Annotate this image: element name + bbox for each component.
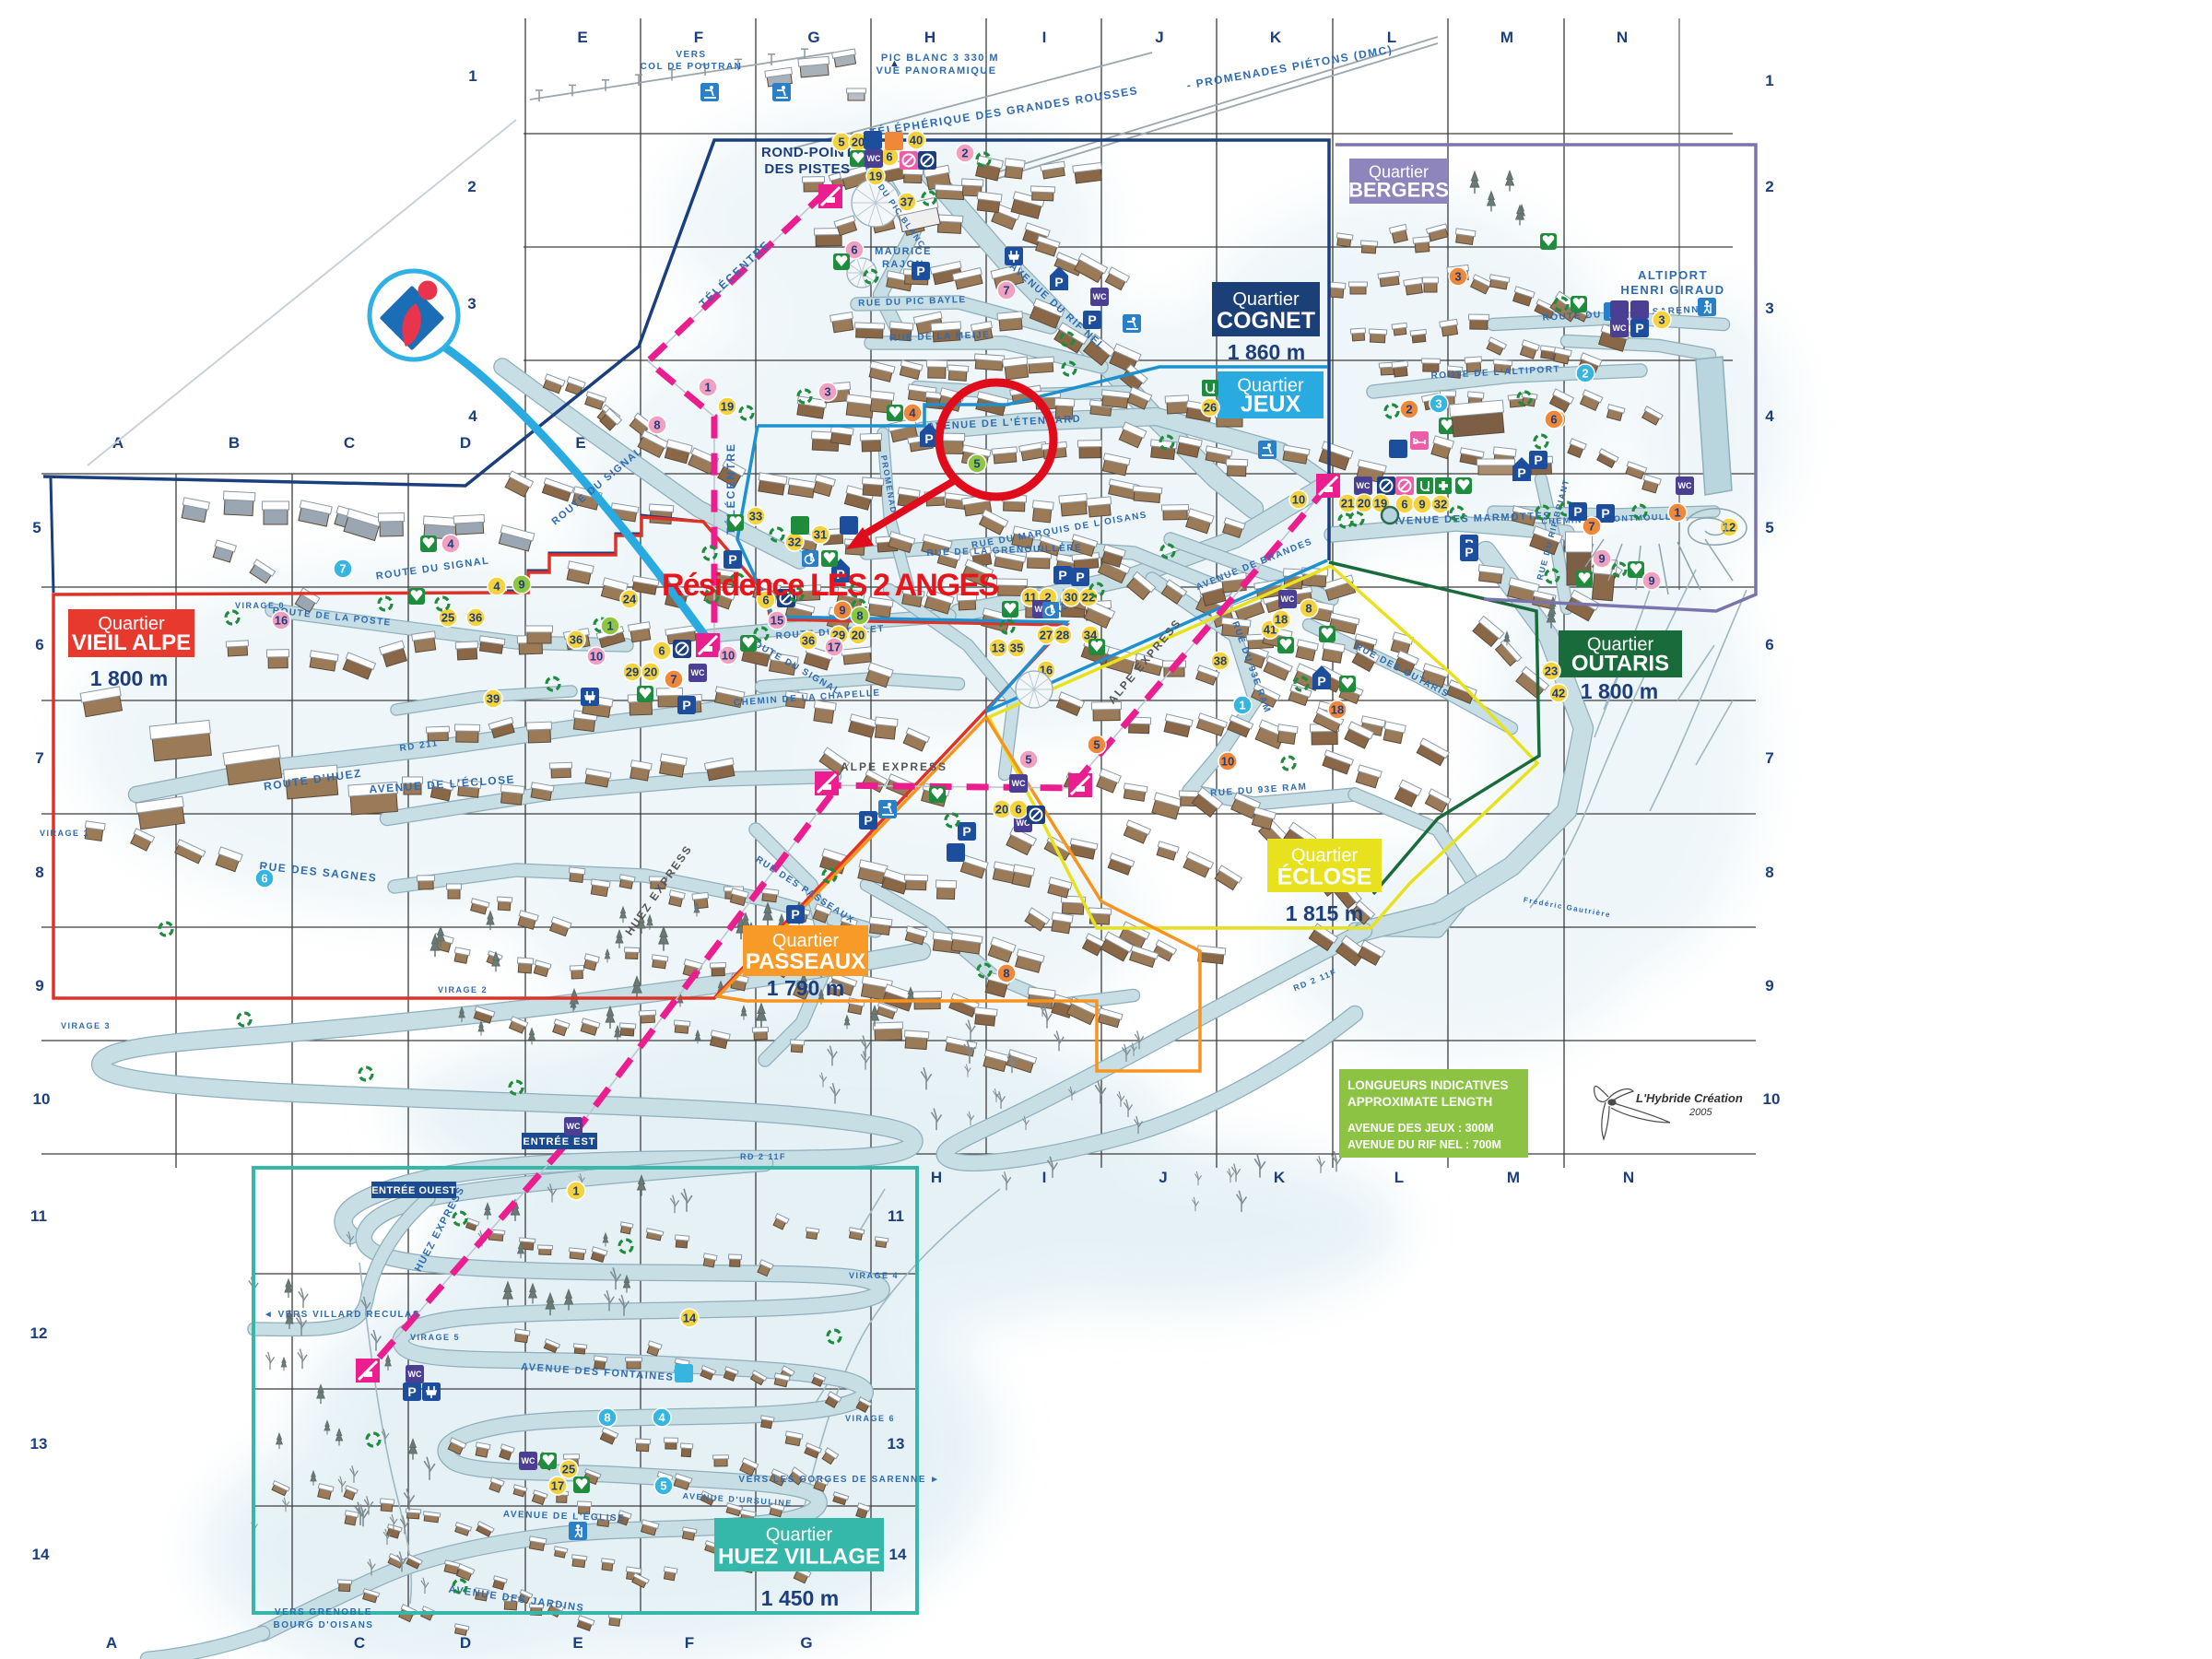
svg-text:WC: WC xyxy=(867,154,881,163)
svg-text:3: 3 xyxy=(1454,270,1461,284)
svg-text:P: P xyxy=(962,824,971,839)
svg-text:M: M xyxy=(1500,29,1513,46)
svg-text:ALTIPORT: ALTIPORT xyxy=(1638,268,1708,282)
svg-text:20: 20 xyxy=(1358,497,1371,511)
svg-text:HENRI GIRAUD: HENRI GIRAUD xyxy=(1620,283,1724,297)
svg-text:N: N xyxy=(1623,1169,1634,1186)
svg-text:10: 10 xyxy=(1763,1090,1781,1108)
svg-text:DES PISTES: DES PISTES xyxy=(764,161,850,177)
svg-text:2: 2 xyxy=(1582,367,1588,381)
svg-text:36: 36 xyxy=(802,634,815,648)
svg-text:B: B xyxy=(229,434,240,452)
svg-text:VIRAGE 5: VIRAGE 5 xyxy=(410,1333,460,1342)
svg-text:14: 14 xyxy=(889,1546,907,1563)
svg-text:10: 10 xyxy=(722,649,735,663)
svg-text:E: E xyxy=(572,1634,582,1652)
svg-text:6: 6 xyxy=(1401,498,1407,512)
svg-text:8: 8 xyxy=(35,864,43,881)
svg-text:VIRAGE 2: VIRAGE 2 xyxy=(438,985,488,994)
svg-text:WC: WC xyxy=(567,1122,581,1131)
svg-text:I: I xyxy=(1042,1169,1047,1186)
svg-text:1 450 m: 1 450 m xyxy=(761,1586,839,1610)
svg-text:13: 13 xyxy=(992,641,1005,655)
svg-text:8: 8 xyxy=(604,1411,610,1425)
svg-text:AVENUE DU RIF NEL : 700M: AVENUE DU RIF NEL : 700M xyxy=(1347,1138,1501,1151)
svg-text:Quartier: Quartier xyxy=(766,1524,833,1545)
svg-text:13: 13 xyxy=(888,1435,905,1453)
svg-text:1 790 m: 1 790 m xyxy=(767,976,844,1000)
svg-text:P: P xyxy=(916,264,924,278)
svg-text:4: 4 xyxy=(658,1411,665,1425)
svg-text:10: 10 xyxy=(1292,493,1305,507)
svg-text:JEUX: JEUX xyxy=(1241,391,1301,417)
svg-text:6: 6 xyxy=(851,243,857,257)
svg-text:20: 20 xyxy=(644,665,657,679)
svg-text:J: J xyxy=(1159,1169,1167,1186)
svg-text:15: 15 xyxy=(771,614,783,628)
svg-text:G: G xyxy=(807,29,819,46)
svg-text:P: P xyxy=(1058,568,1066,582)
svg-text:20: 20 xyxy=(852,629,865,642)
svg-text:WC: WC xyxy=(522,1456,535,1465)
svg-text:D: D xyxy=(460,434,471,452)
svg-text:31: 31 xyxy=(814,528,827,542)
svg-text:17: 17 xyxy=(551,1479,564,1493)
svg-text:9: 9 xyxy=(35,977,43,994)
svg-text:LONGUEURS INDICATIVES: LONGUEURS INDICATIVES xyxy=(1347,1078,1509,1092)
svg-text:P: P xyxy=(1076,570,1084,584)
svg-text:3: 3 xyxy=(467,295,476,312)
svg-text:18: 18 xyxy=(1275,613,1288,627)
svg-text:1 800 m: 1 800 m xyxy=(90,666,168,690)
svg-text:MAURICE: MAURICE xyxy=(875,246,932,257)
svg-text:25: 25 xyxy=(441,611,454,625)
svg-text:VIEIL ALPE: VIEIL ALPE xyxy=(72,630,191,655)
svg-text:COL DE POUTRAN: COL DE POUTRAN xyxy=(641,62,743,72)
svg-text:4: 4 xyxy=(493,580,500,594)
svg-text:5: 5 xyxy=(660,1479,666,1493)
svg-text:1: 1 xyxy=(1765,72,1773,89)
svg-text:P: P xyxy=(728,552,736,567)
svg-text:5: 5 xyxy=(1765,519,1773,536)
svg-text:2: 2 xyxy=(961,147,968,160)
svg-text:11: 11 xyxy=(30,1207,47,1225)
svg-text:1 815 m: 1 815 m xyxy=(1286,901,1363,925)
svg-text:36: 36 xyxy=(570,633,582,647)
svg-text:35: 35 xyxy=(1010,641,1023,655)
svg-text:J: J xyxy=(1155,29,1163,46)
svg-text:G: G xyxy=(800,1634,812,1652)
svg-text:6: 6 xyxy=(35,636,43,653)
svg-text:P: P xyxy=(407,1384,416,1399)
svg-text:3: 3 xyxy=(1435,397,1441,411)
svg-text:9: 9 xyxy=(518,578,524,592)
svg-text:N: N xyxy=(1617,29,1628,46)
svg-text:2: 2 xyxy=(467,178,476,195)
svg-text:13: 13 xyxy=(30,1435,48,1453)
svg-text:9: 9 xyxy=(1765,977,1773,994)
svg-text:COGNET: COGNET xyxy=(1217,308,1315,334)
svg-text:8: 8 xyxy=(1305,602,1312,616)
svg-text:E: E xyxy=(577,29,587,46)
svg-text:9: 9 xyxy=(1418,498,1425,512)
svg-text:I: I xyxy=(1042,29,1047,46)
svg-text:P: P xyxy=(791,907,799,922)
svg-text:9: 9 xyxy=(1598,552,1605,566)
svg-text:ÉCLOSE: ÉCLOSE xyxy=(1277,863,1372,889)
svg-text:P: P xyxy=(1088,312,1096,327)
svg-text:L'Hybride Création: L'Hybride Création xyxy=(1636,1091,1743,1105)
svg-text:16: 16 xyxy=(275,614,288,628)
svg-text:PASSEAUX: PASSEAUX xyxy=(746,949,865,974)
svg-text:PIC BLANC 3 330 M: PIC BLANC 3 330 M xyxy=(881,53,999,64)
svg-text:9: 9 xyxy=(1648,574,1654,588)
svg-text:30: 30 xyxy=(1065,591,1077,605)
svg-text:VIRAGE 3: VIRAGE 3 xyxy=(61,1021,111,1030)
svg-text:10: 10 xyxy=(33,1090,51,1108)
svg-text:Quartier: Quartier xyxy=(1232,289,1300,310)
svg-text:M: M xyxy=(1507,1169,1520,1186)
svg-text:VERS LES GORGES DE SARENNE ►: VERS LES GORGES DE SARENNE ► xyxy=(738,1475,940,1485)
svg-text:ALPE EXPRESS: ALPE EXPRESS xyxy=(841,760,947,773)
svg-text:6: 6 xyxy=(1550,413,1557,427)
svg-text:RD 2 11F: RD 2 11F xyxy=(740,1152,786,1161)
svg-text:Résidence LES 2 ANGES: Résidence LES 2 ANGES xyxy=(662,568,999,603)
svg-text:1 800 m: 1 800 m xyxy=(1581,679,1658,703)
svg-text:VIRAGE 1: VIRAGE 1 xyxy=(40,829,89,838)
svg-text:1 860 m: 1 860 m xyxy=(1228,340,1305,364)
svg-text:36: 36 xyxy=(469,611,482,625)
svg-text:WC: WC xyxy=(408,1370,422,1379)
svg-text:14: 14 xyxy=(683,1312,697,1325)
svg-text:VIRAGE 0: VIRAGE 0 xyxy=(235,601,285,610)
svg-text:6: 6 xyxy=(1015,803,1021,817)
svg-text:6: 6 xyxy=(261,872,267,886)
svg-text:VIRAGE 6: VIRAGE 6 xyxy=(845,1414,895,1423)
svg-text:1: 1 xyxy=(704,381,711,394)
svg-text:◄ VERS VILLARD RECULAS: ◄ VERS VILLARD RECULAS xyxy=(264,1310,420,1320)
svg-text:20: 20 xyxy=(995,803,1008,817)
svg-text:5: 5 xyxy=(1093,738,1100,752)
svg-text:4: 4 xyxy=(468,407,477,425)
svg-text:7: 7 xyxy=(670,673,677,687)
svg-text:VUE PANORAMIQUE: VUE PANORAMIQUE xyxy=(876,65,996,76)
svg-text:24: 24 xyxy=(623,593,637,606)
svg-text:C: C xyxy=(344,434,355,452)
svg-text:5: 5 xyxy=(1025,753,1031,767)
svg-text:ENTRÉE OUEST: ENTRÉE OUEST xyxy=(371,1184,456,1196)
svg-text:8: 8 xyxy=(1765,864,1773,881)
svg-text:7: 7 xyxy=(1588,520,1594,534)
svg-text:19: 19 xyxy=(869,170,882,183)
svg-text:VERS GRENOBLE: VERS GRENOBLE xyxy=(275,1607,372,1618)
svg-text:VERS: VERS xyxy=(676,50,706,60)
svg-text:P: P xyxy=(1465,545,1473,559)
svg-text:D: D xyxy=(460,1634,471,1652)
svg-text:40: 40 xyxy=(910,134,923,147)
svg-text:H: H xyxy=(931,1169,942,1186)
svg-text:21: 21 xyxy=(1341,497,1354,511)
svg-text:1: 1 xyxy=(606,619,613,633)
svg-text:1: 1 xyxy=(1674,506,1680,520)
svg-text:4: 4 xyxy=(447,537,454,551)
svg-text:AVENUE DES JEUX : 300M: AVENUE DES JEUX : 300M xyxy=(1347,1122,1494,1135)
svg-text:11: 11 xyxy=(888,1207,904,1225)
svg-text:P: P xyxy=(864,813,872,828)
svg-text:23: 23 xyxy=(1545,665,1558,678)
svg-text:20: 20 xyxy=(852,135,865,149)
svg-text:17: 17 xyxy=(828,641,841,654)
svg-text:5: 5 xyxy=(838,135,844,149)
svg-text:3: 3 xyxy=(1658,313,1665,327)
svg-text:7: 7 xyxy=(339,562,346,576)
svg-text:2: 2 xyxy=(1406,403,1412,417)
svg-text:Quartier: Quartier xyxy=(1291,845,1359,865)
svg-text:32: 32 xyxy=(1434,498,1447,512)
svg-text:8: 8 xyxy=(1003,967,1009,981)
svg-text:C: C xyxy=(354,1634,365,1652)
svg-text:HUEZ VILLAGE: HUEZ VILLAGE xyxy=(718,1544,880,1569)
svg-text:P: P xyxy=(1534,453,1542,467)
svg-text:5: 5 xyxy=(973,457,980,471)
svg-text:OUTARIS: OUTARIS xyxy=(1571,651,1669,676)
svg-text:F: F xyxy=(694,29,703,46)
svg-text:BERGERS: BERGERS xyxy=(1348,179,1449,202)
svg-text:38: 38 xyxy=(1214,654,1227,668)
svg-text:14: 14 xyxy=(32,1546,50,1563)
svg-text:WC: WC xyxy=(1357,481,1371,490)
svg-text:ENTRÉE EST: ENTRÉE EST xyxy=(523,1135,595,1147)
svg-text:WC: WC xyxy=(1613,324,1627,333)
svg-text:P: P xyxy=(924,431,933,446)
svg-text:6: 6 xyxy=(658,644,665,658)
svg-text:3: 3 xyxy=(1765,300,1773,317)
svg-text:P: P xyxy=(682,698,690,712)
svg-text:6: 6 xyxy=(886,150,892,164)
svg-text:WC: WC xyxy=(1012,779,1026,788)
svg-text:K: K xyxy=(1274,1169,1286,1186)
svg-text:L: L xyxy=(1394,1169,1404,1186)
svg-text:1: 1 xyxy=(1239,699,1245,712)
svg-text:9: 9 xyxy=(839,604,845,618)
svg-text:32: 32 xyxy=(788,535,801,549)
svg-text:29: 29 xyxy=(626,665,639,679)
svg-text:WC: WC xyxy=(1281,594,1295,604)
svg-text:19: 19 xyxy=(721,400,734,414)
svg-text:42: 42 xyxy=(1552,687,1565,700)
svg-text:BOURG D'OISANS: BOURG D'OISANS xyxy=(274,1620,374,1630)
svg-text:33: 33 xyxy=(749,510,762,524)
svg-text:27: 27 xyxy=(1040,629,1053,642)
svg-text:8: 8 xyxy=(653,418,660,432)
svg-text:5: 5 xyxy=(32,519,41,536)
svg-text:2005: 2005 xyxy=(1688,1107,1712,1118)
svg-text:WC: WC xyxy=(1678,481,1692,490)
svg-text:K: K xyxy=(1270,29,1282,46)
svg-text:22: 22 xyxy=(1082,591,1095,605)
svg-text:P: P xyxy=(1317,674,1325,688)
svg-text:25: 25 xyxy=(562,1463,575,1477)
svg-text:7: 7 xyxy=(1003,284,1009,298)
svg-text:12: 12 xyxy=(30,1324,48,1342)
svg-text:APPROXIMATE LENGTH: APPROXIMATE LENGTH xyxy=(1347,1095,1492,1109)
svg-text:7: 7 xyxy=(1765,749,1773,767)
svg-text:2: 2 xyxy=(1765,178,1773,195)
svg-text:37: 37 xyxy=(900,195,913,209)
svg-text:P: P xyxy=(1573,504,1582,519)
svg-text:H: H xyxy=(924,29,935,46)
svg-text:4: 4 xyxy=(1765,407,1774,425)
svg-text:VIRAGE 4: VIRAGE 4 xyxy=(849,1271,899,1280)
svg-text:WC: WC xyxy=(1093,292,1107,301)
svg-text:28: 28 xyxy=(1056,629,1069,642)
svg-text:WC: WC xyxy=(691,668,705,677)
svg-text:P: P xyxy=(1054,275,1063,289)
svg-text:P: P xyxy=(1517,465,1525,480)
svg-text:18: 18 xyxy=(1331,703,1344,717)
svg-text:7: 7 xyxy=(35,749,43,767)
svg-text:1: 1 xyxy=(468,67,477,85)
svg-text:4: 4 xyxy=(909,406,916,420)
svg-text:P: P xyxy=(1635,321,1643,335)
svg-text:A: A xyxy=(106,1634,117,1652)
svg-text:6: 6 xyxy=(1765,636,1773,653)
svg-text:1: 1 xyxy=(572,1184,579,1198)
svg-text:8: 8 xyxy=(856,609,863,623)
svg-text:39: 39 xyxy=(487,692,500,706)
svg-text:P: P xyxy=(1601,506,1609,521)
svg-text:10: 10 xyxy=(590,650,603,664)
svg-text:3: 3 xyxy=(824,385,830,399)
svg-text:10: 10 xyxy=(1221,755,1234,769)
svg-text:F: F xyxy=(685,1634,694,1652)
svg-text:26: 26 xyxy=(1204,401,1217,415)
